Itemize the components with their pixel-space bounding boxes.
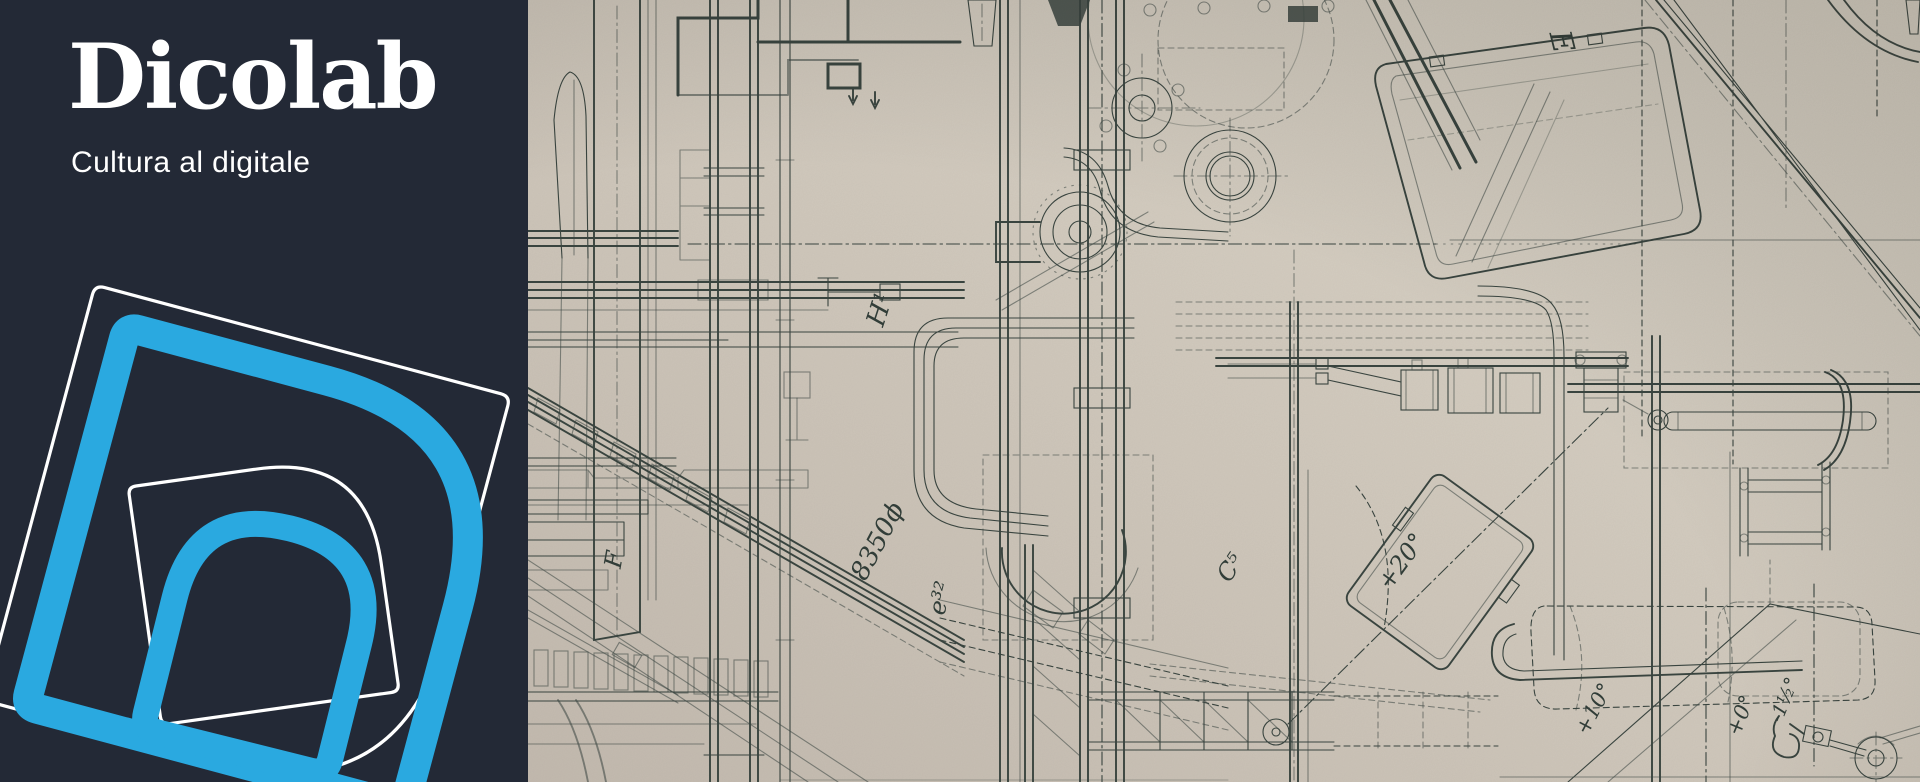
brand-tagline: Cultura al digitale <box>71 146 310 180</box>
brand-wordmark: Dicolab <box>68 30 437 125</box>
technical-drawing-image: E H¹ F 8350ϕ e³² C⁵ +20° +10° +0° -1½° <box>528 0 1920 782</box>
banner: Dicolab Cultura al digitale <box>0 0 1920 782</box>
photo-vignette <box>528 0 1920 782</box>
brand-panel: Dicolab Cultura al digitale <box>0 0 528 782</box>
